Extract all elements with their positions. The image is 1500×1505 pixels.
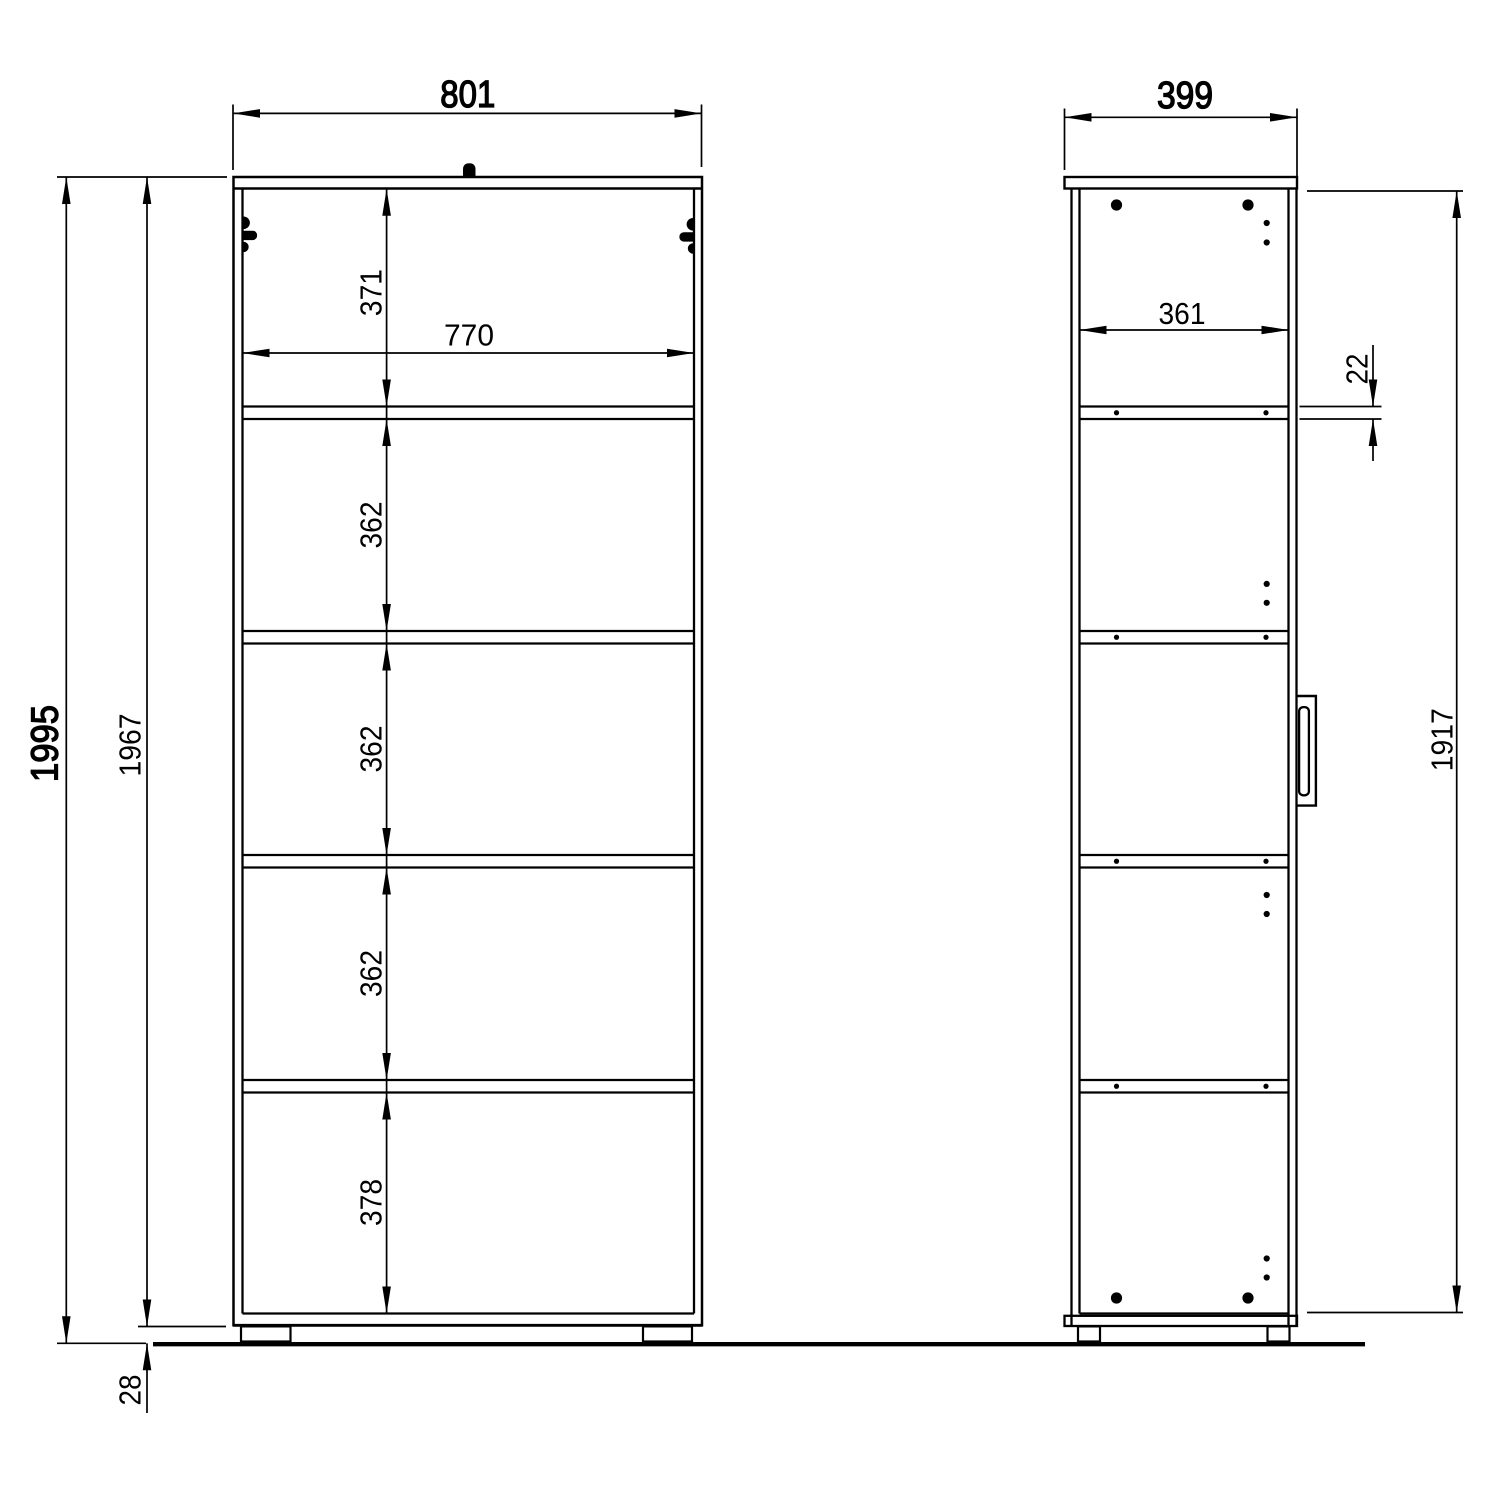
svg-text:22: 22 xyxy=(1340,354,1375,385)
svg-text:362: 362 xyxy=(353,502,388,549)
svg-text:371: 371 xyxy=(353,269,388,316)
svg-text:1995: 1995 xyxy=(25,705,67,782)
svg-text:801: 801 xyxy=(440,74,495,116)
svg-text:362: 362 xyxy=(353,950,388,997)
svg-text:1967: 1967 xyxy=(113,714,148,777)
svg-text:1917: 1917 xyxy=(1425,708,1460,771)
svg-text:362: 362 xyxy=(353,726,388,773)
svg-text:378: 378 xyxy=(353,1179,388,1226)
svg-text:399: 399 xyxy=(1157,75,1213,117)
svg-text:28: 28 xyxy=(113,1375,148,1406)
svg-text:361: 361 xyxy=(1159,296,1206,331)
svg-text:770: 770 xyxy=(444,318,494,353)
